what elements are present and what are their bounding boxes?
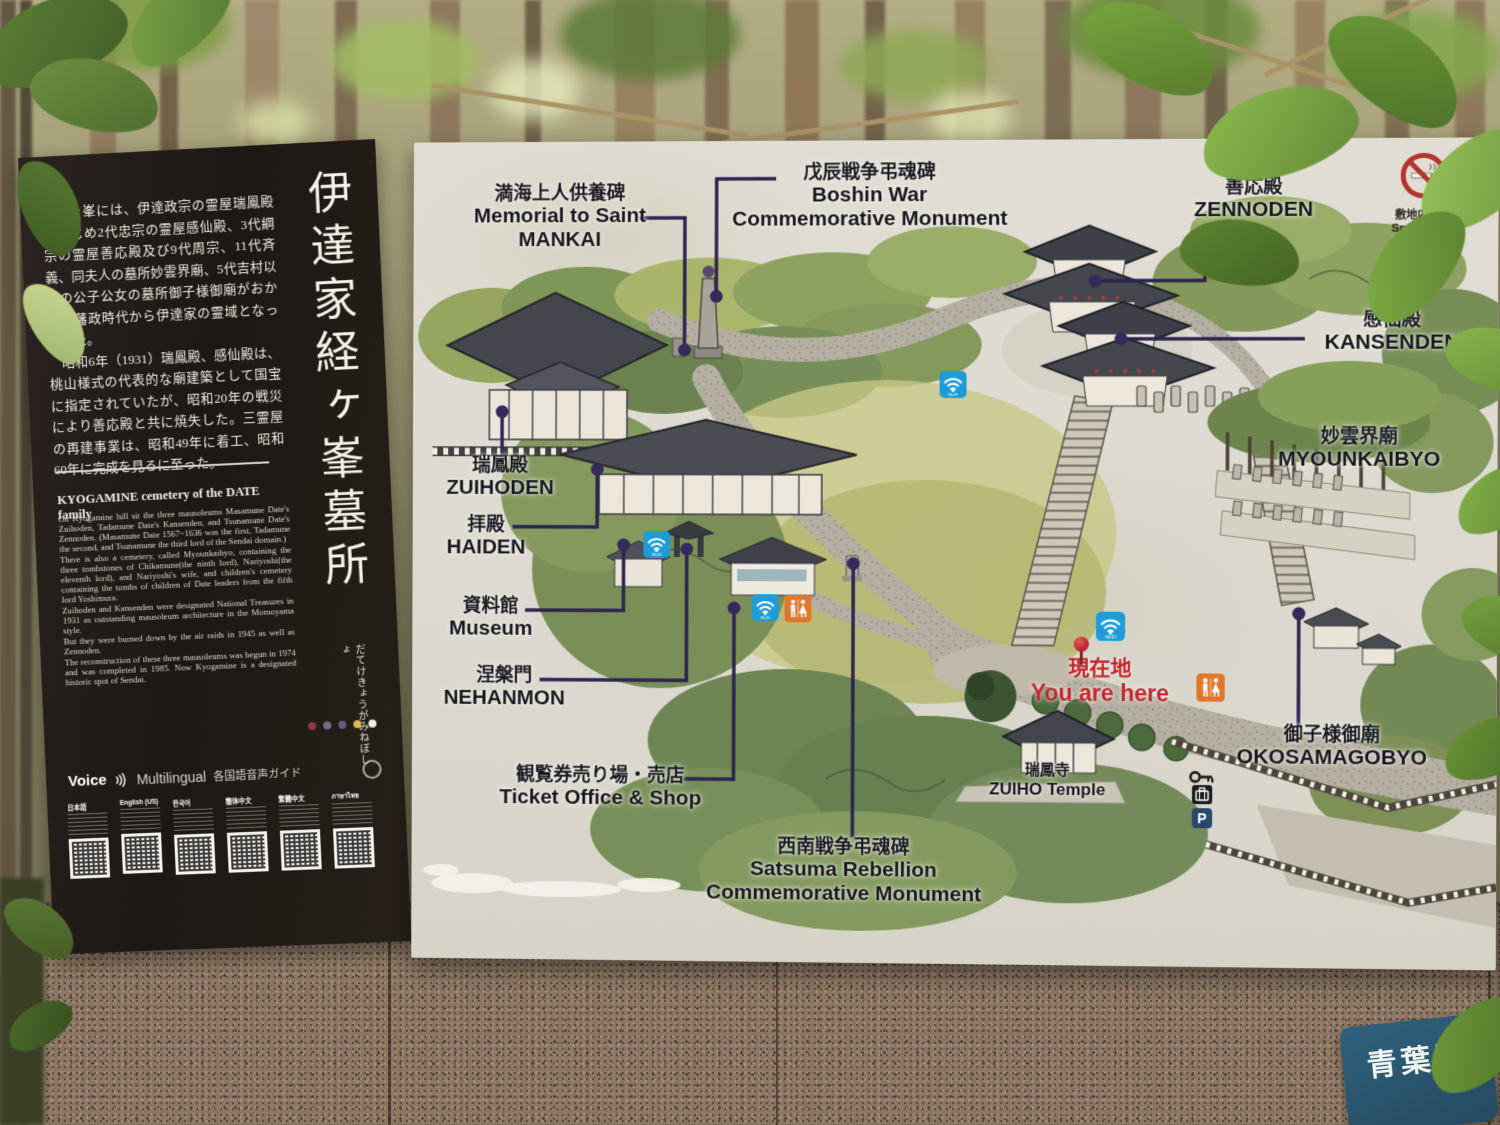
label-en: You are here — [1031, 680, 1169, 707]
qr-code — [333, 827, 375, 869]
label-en: KANSENDEN — [1324, 331, 1459, 355]
qr-code — [280, 829, 322, 871]
map-label-boshin: 戊辰戦争弔魂碑 Boshin War Commemorative Monumen… — [732, 162, 1008, 231]
label-en: Ticket Office & Shop — [499, 786, 701, 811]
qr-card-japanese: 日本語 — [67, 800, 118, 879]
qr-language-label: 簡体中文 — [225, 795, 251, 806]
label-jp: 戊辰戦争弔魂碑 — [732, 162, 1007, 184]
label-jp: 西南戦争弔魂碑 — [706, 836, 981, 860]
map-label-haiden: 拝殿 HAIDEN — [447, 515, 526, 560]
en-paragraph: There is also a cemetery, called Myounka… — [60, 545, 293, 605]
light-spot — [930, 90, 1010, 145]
qr-description-text — [279, 804, 320, 828]
panel-english-text: On Kyogamine hill sit the three mausoleu… — [58, 503, 297, 688]
wifi-icon: Wi-Fi — [752, 594, 779, 621]
qr-language-label: 繁體中文 — [278, 793, 304, 804]
map-label-zennoden: 善応殿 ZENNODEN — [1194, 177, 1313, 222]
qr-card-traditional-chinese: 繁體中文 — [278, 792, 330, 871]
label-jp: 拝殿 — [447, 515, 526, 536]
light-spot — [490, 60, 580, 120]
parking-icon: P — [1192, 808, 1212, 828]
color-dot — [323, 721, 331, 729]
qr-code — [69, 837, 111, 878]
qr-description-text — [120, 807, 161, 831]
map-label-okosamagobyo: 御子様御廟 OKOSAMAGOBYO — [1237, 724, 1428, 771]
multilingual-label: Multilingual — [136, 768, 207, 787]
key-icon — [1189, 770, 1215, 784]
map-label-zuiho-temple: 瑞鳳寺 ZUIHO Temple — [989, 762, 1105, 799]
map-board: 満海上人供養碑 Memorial to Saint MANKAI 戊辰戦争弔魂碑… — [411, 137, 1499, 970]
you-are-here-pin — [1074, 637, 1090, 667]
qr-description-text — [332, 802, 373, 826]
guide-jp-label: 各国語音声ガイド — [213, 764, 302, 784]
label-en: NEHANMON — [444, 686, 565, 710]
svg-text:Wi-Fi: Wi-Fi — [652, 552, 662, 557]
qr-language-label: 日本語 — [67, 801, 87, 812]
label-en: Satsuma Rebellion Commemorative Monument — [706, 857, 981, 907]
qr-code — [227, 831, 269, 873]
label-jp: 満海上人供養碑 — [474, 183, 646, 205]
map-label-ticket-office: 観覧券売り場・売店 Ticket Office & Shop — [499, 764, 701, 810]
light-spot — [240, 100, 310, 145]
map-label-museum: 資料館 Museum — [449, 596, 533, 641]
label-en: Boshin War Commemorative Monument — [732, 183, 1007, 231]
qr-card-thai: ภาษาไทย — [331, 790, 383, 869]
qr-description-text — [226, 806, 267, 830]
wifi-icon: Wi-Fi — [1096, 612, 1125, 641]
voice-label: Voice — [68, 772, 107, 791]
map-label-satsuma: 西南戦争弔魂碑 Satsuma Rebellion Commemorative … — [706, 836, 981, 907]
label-en: MYOUNKAIBYO — [1278, 448, 1440, 472]
qr-language-label: 한국어 — [172, 797, 190, 808]
label-en: ZENNODEN — [1194, 198, 1313, 222]
qr-description-text — [68, 813, 109, 837]
svg-text:Wi-Fi: Wi-Fi — [760, 615, 770, 620]
qr-code-row: 日本語 English (US) 한국어 簡体中文 繁體中文 — [67, 789, 390, 879]
qr-card-simplified-chinese: 簡体中文 — [225, 794, 276, 873]
qr-card-korean: 한국어 — [172, 796, 223, 875]
panel-title-reading: だてけきょうがみねぼしょ — [336, 644, 372, 776]
map-label-myounkaibyo: 妙雲界廟 MYOUNKAIBYO — [1278, 426, 1440, 471]
color-dot — [338, 721, 346, 729]
label-jp: 現在地 — [1031, 656, 1169, 680]
label-en: ZUIHO Temple — [989, 779, 1105, 799]
label-jp: 瑞鳳殿 — [446, 455, 554, 476]
qr-description-text — [173, 808, 214, 832]
map-label-you-are-here: 現在地 You are here — [1031, 656, 1169, 706]
qr-card-english: English (US) — [120, 798, 171, 877]
label-en: OKOSAMAGOBYO — [1237, 745, 1428, 770]
toilet-icon — [785, 595, 812, 622]
map-label-nehanmon: 涅槃門 NEHANMON — [444, 665, 565, 710]
jp-paragraph: 昭和6年（1931）瑞鳳殿、感仙殿は、桃山様式の代表的な廟建築として国宝に指定さ… — [49, 341, 286, 481]
toilet-icon — [1196, 673, 1224, 701]
label-jp: 資料館 — [449, 596, 533, 617]
label-jp: 観覧券売り場・売店 — [499, 764, 701, 787]
qr-language-label: English (US) — [120, 799, 159, 808]
photo-scene: 経ヶ峯には、伊達政宗の霊屋瑞鳳殿をはじめ2代忠宗の霊屋感仙殿、3代綱宗の霊屋善応… — [0, 0, 1500, 1125]
panel-vertical-title: 伊達家経ヶ峯墓所 — [292, 168, 378, 652]
qr-language-label: ภาษาไทย — [331, 790, 359, 801]
qr-code — [174, 833, 216, 875]
color-dot — [368, 719, 376, 727]
audio-guide-logo — [362, 759, 382, 779]
label-jp: 妙雲界廟 — [1278, 426, 1440, 448]
wifi-icon: Wi-Fi — [940, 371, 967, 398]
color-dot — [353, 720, 361, 728]
label-en: Museum — [449, 617, 533, 641]
label-en: Memorial to Saint MANKAI — [474, 204, 646, 251]
svg-text:Wi-Fi: Wi-Fi — [948, 392, 958, 397]
map-label-mankai: 満海上人供養碑 Memorial to Saint MANKAI — [474, 183, 646, 251]
sound-waves-icon — [113, 771, 130, 788]
map-label-zuihoden: 瑞鳳殿 ZUIHODEN — [446, 455, 554, 500]
label-jp: 瑞鳳寺 — [989, 762, 1105, 780]
voice-guide-row: Voice Multilingual 各国語音声ガイド — [68, 759, 382, 791]
label-en: HAIDEN — [447, 536, 526, 560]
label-jp: 御子様御廟 — [1237, 724, 1428, 747]
coin-locker-icon — [1192, 785, 1212, 804]
qr-code — [121, 832, 163, 873]
info-panel: 経ヶ峯には、伊達政宗の霊屋瑞鳳殿をはじめ2代忠宗の霊屋感仙殿、3代綱宗の霊屋善応… — [18, 139, 412, 954]
svg-text:Wi-Fi: Wi-Fi — [1105, 635, 1116, 640]
label-en: ZUIHODEN — [446, 476, 554, 500]
label-jp: 涅槃門 — [444, 665, 565, 687]
wifi-icon: Wi-Fi — [643, 531, 670, 558]
color-dot — [308, 722, 316, 730]
